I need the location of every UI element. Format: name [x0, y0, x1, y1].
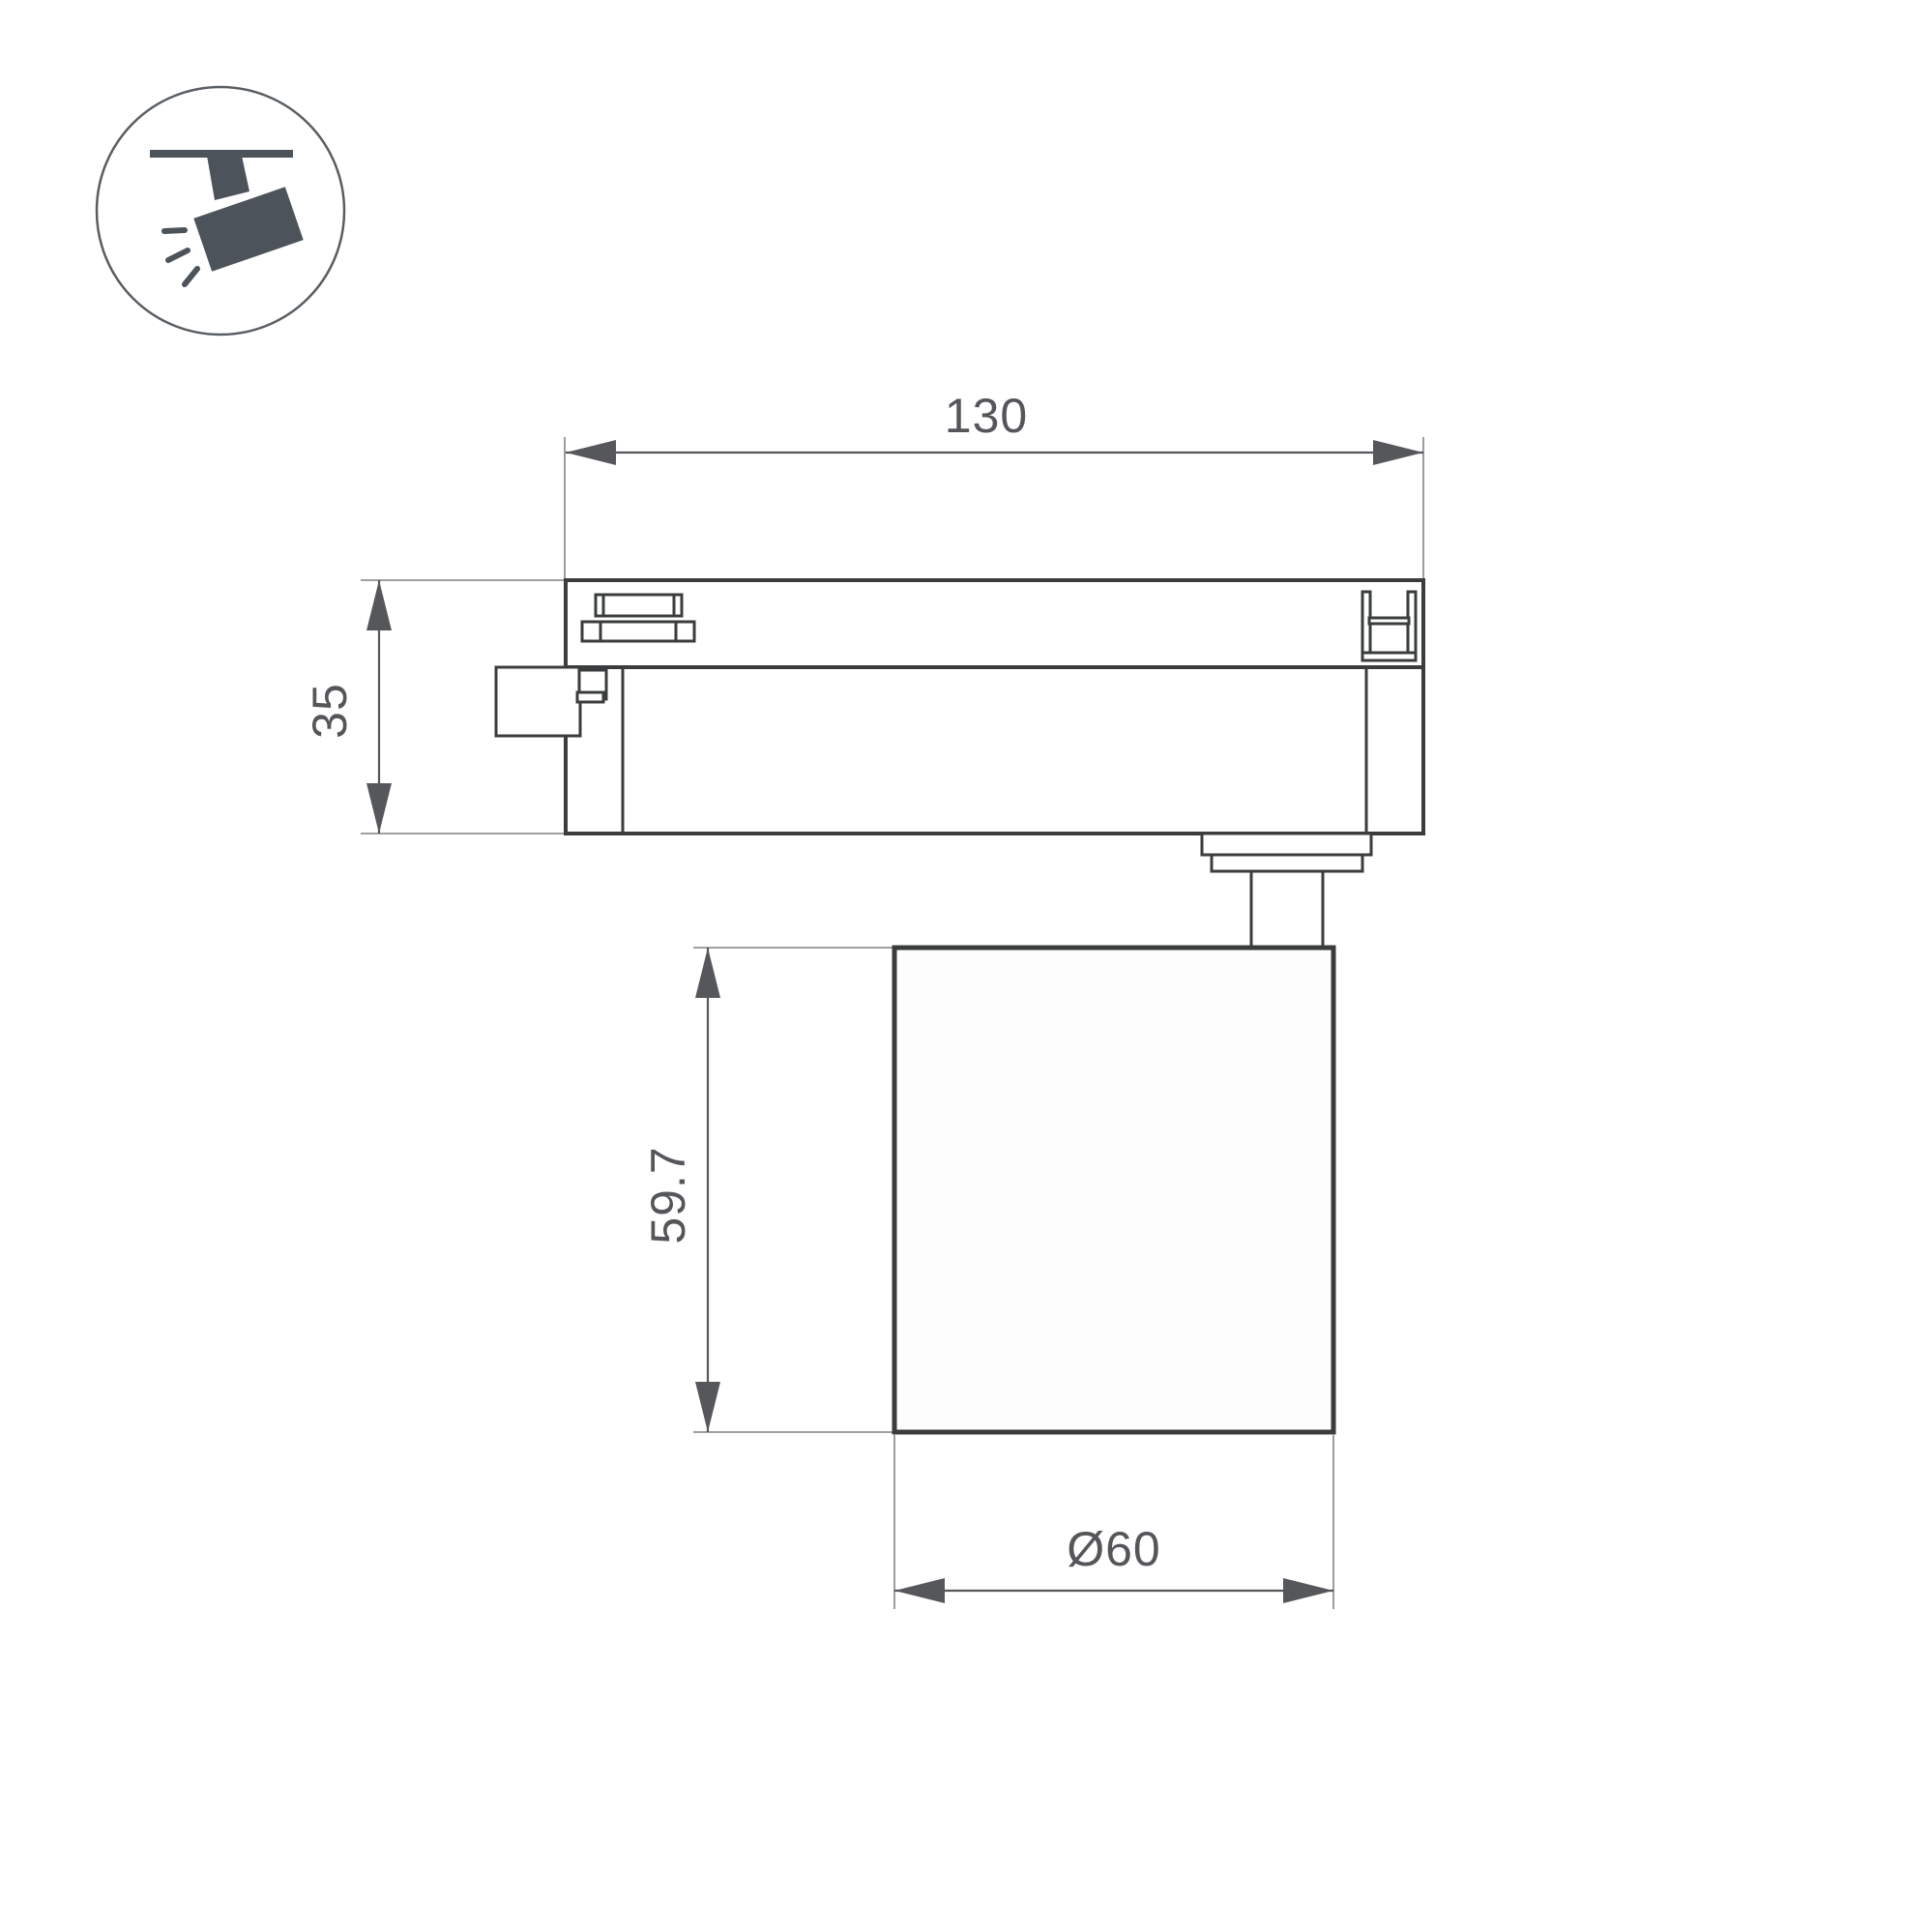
latch-lever-box — [496, 667, 580, 736]
bracket-crossbar — [1369, 618, 1409, 624]
contact-clip-lower — [582, 622, 694, 641]
bracket-right-wall — [1408, 592, 1416, 659]
adapter-lower-section — [566, 667, 1423, 834]
arrowhead-up — [366, 580, 392, 630]
clip-outline — [582, 622, 694, 641]
arrowhead-left — [566, 440, 616, 465]
arrowhead-down — [366, 783, 392, 834]
technical-drawing-page: 130 35 59.7 Ø60 — [0, 0, 1932, 1932]
clip-outline — [596, 595, 682, 616]
track-spotlight-icon — [97, 87, 344, 335]
lamp-head-body — [894, 948, 1333, 1432]
dimension-lamp-height: 59.7 — [641, 948, 893, 1432]
bracket-left-wall — [1362, 592, 1370, 659]
track-height-label: 35 — [303, 683, 357, 739]
connector-stem — [1251, 871, 1323, 949]
arrowhead-left — [894, 1578, 945, 1603]
arrowhead-up — [695, 948, 720, 998]
icon-light-ray-1 — [164, 230, 185, 231]
contact-clip-upper — [596, 595, 682, 616]
lamp-diameter-label: Ø60 — [1067, 1522, 1161, 1576]
arrowhead-right — [1283, 1578, 1333, 1603]
connector-plate-lower — [1212, 855, 1362, 871]
arrowhead-right — [1373, 440, 1423, 465]
swivel-connector — [1202, 834, 1371, 949]
dimension-lamp-diameter: Ø60 — [894, 1435, 1333, 1609]
latch-hook-lip — [577, 692, 603, 702]
lamp-height-label: 59.7 — [641, 1146, 695, 1244]
track-width-label: 130 — [945, 389, 1028, 443]
bracket-bottom-bar — [1362, 653, 1416, 660]
arrowhead-down — [695, 1382, 720, 1432]
track-spotlight-dimension-drawing: 130 35 59.7 Ø60 — [0, 0, 1932, 1932]
track-adapter-body — [496, 580, 1423, 949]
connector-plate-upper — [1202, 834, 1371, 855]
dimension-track-width: 130 — [565, 389, 1423, 579]
